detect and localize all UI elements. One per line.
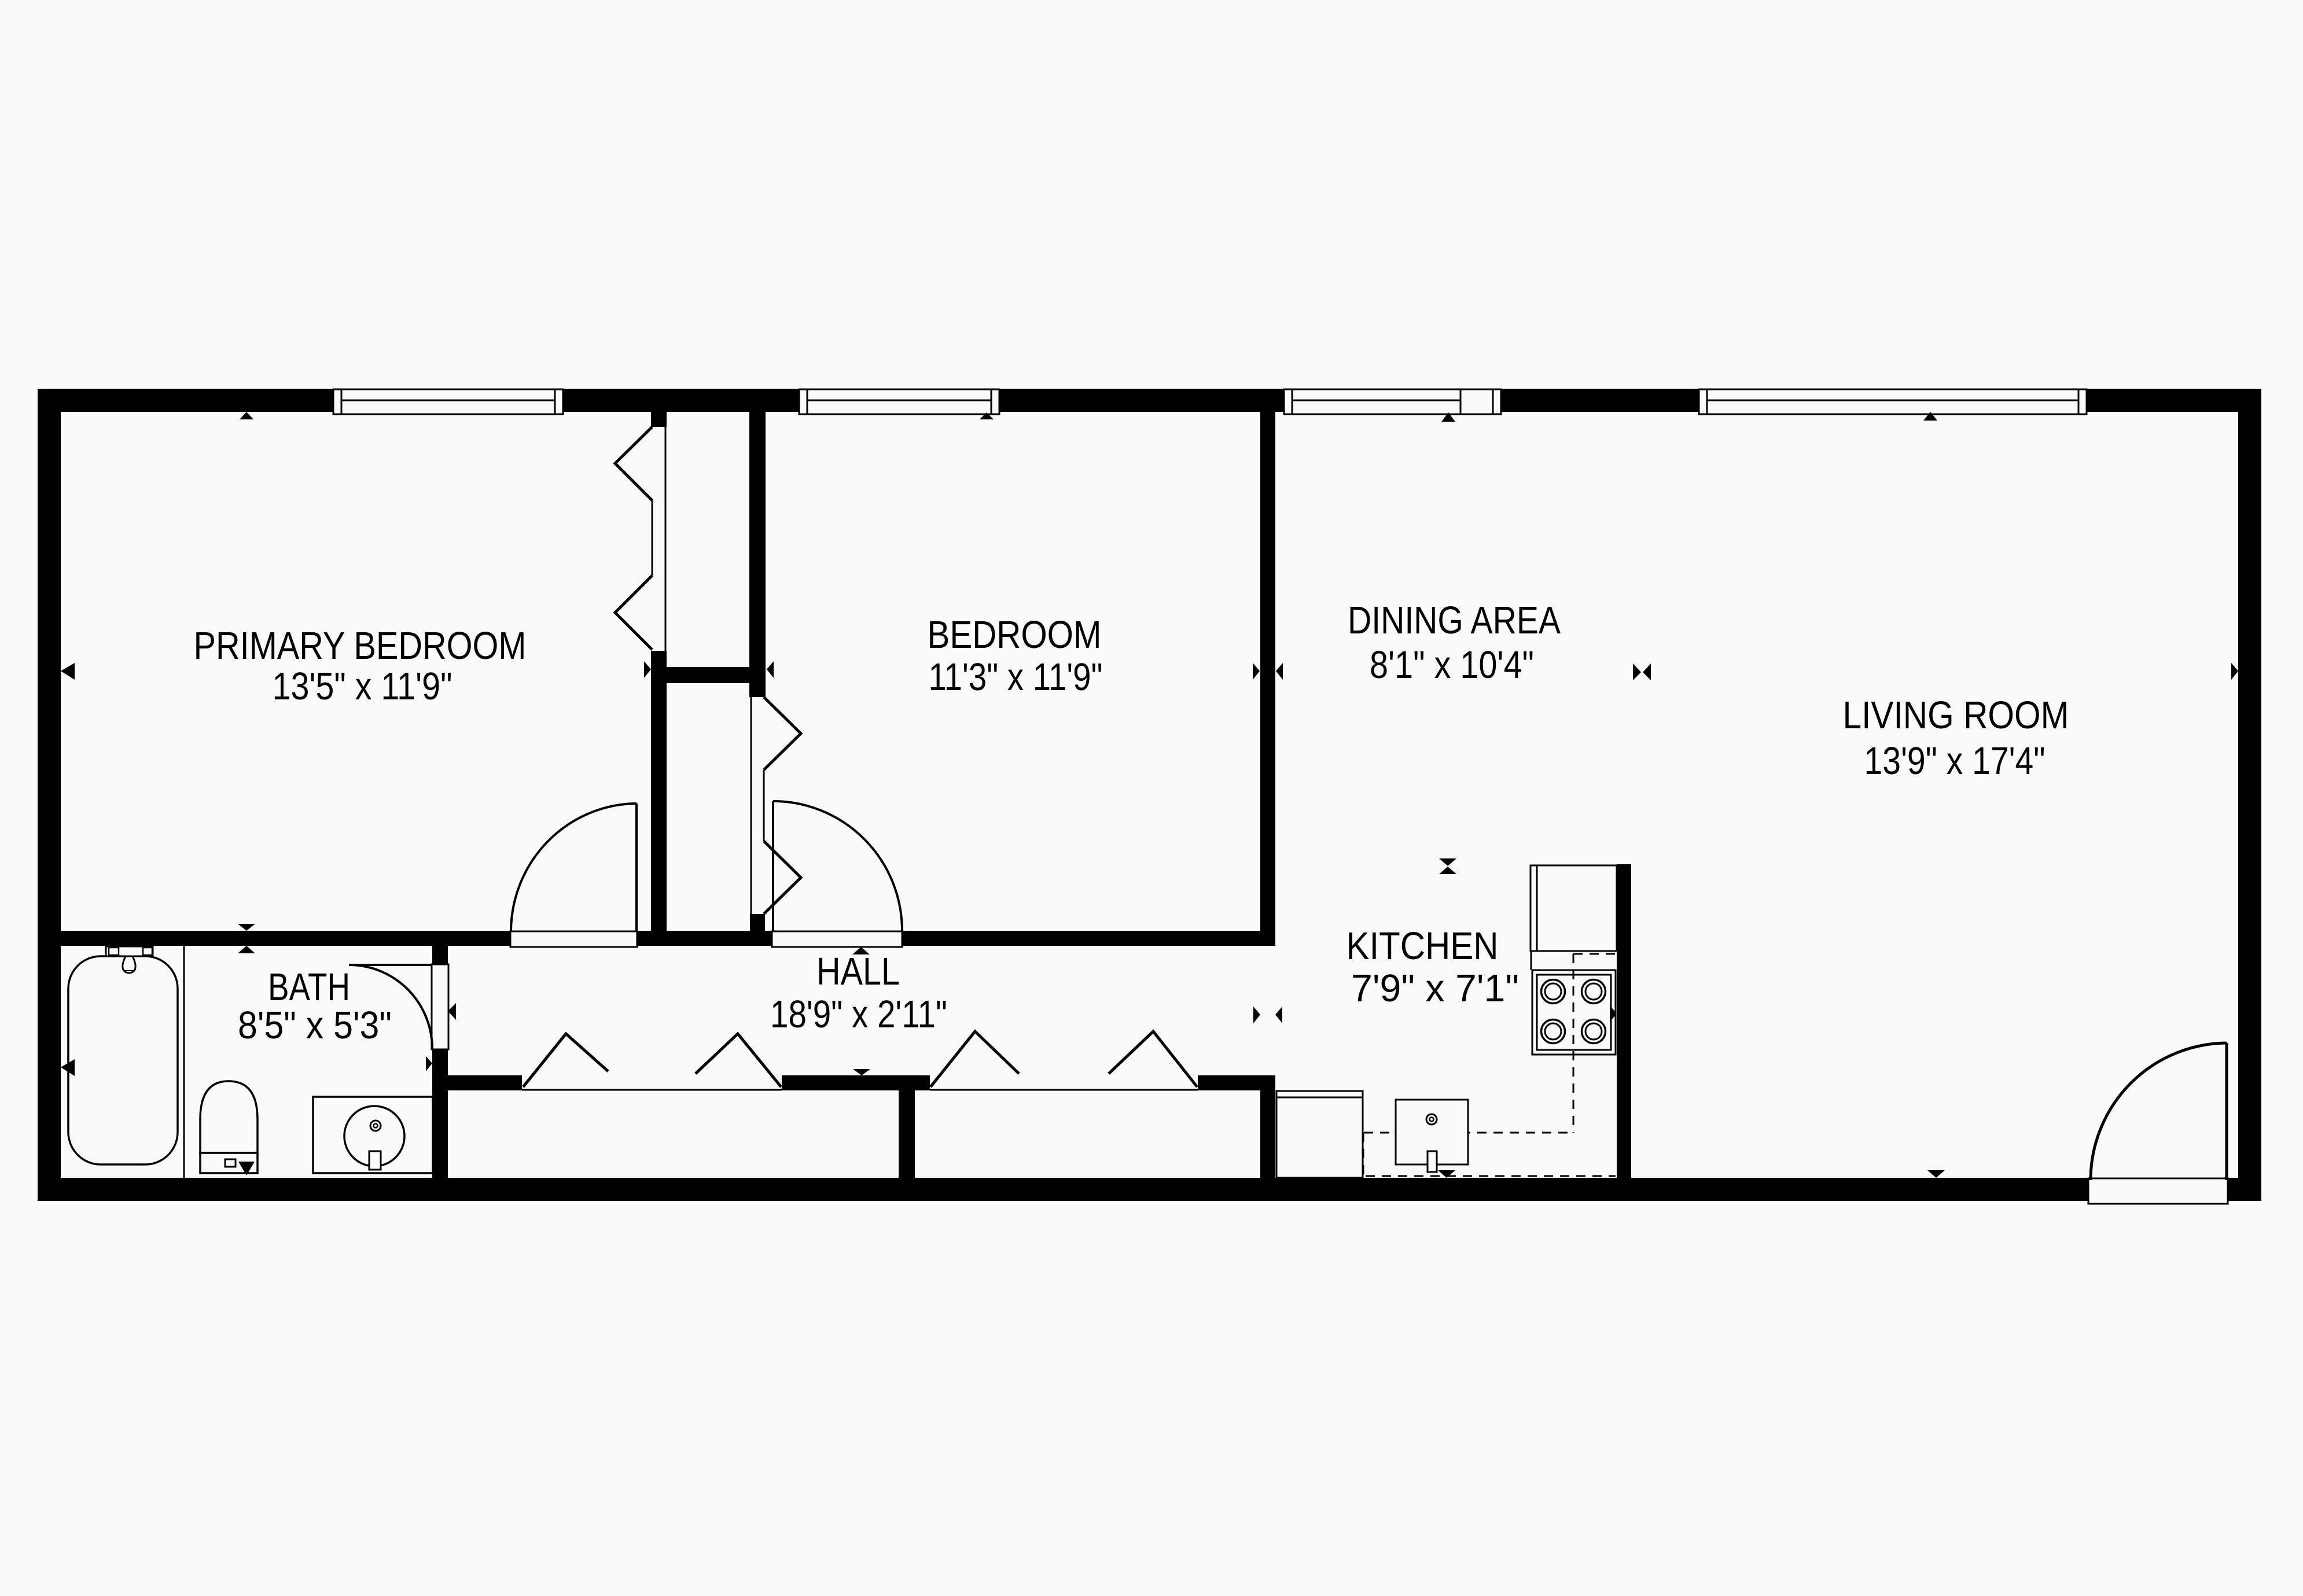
svg-text:HALL: HALL	[816, 950, 900, 993]
svg-text:11'3" x 11'9": 11'3" x 11'9"	[929, 655, 1103, 699]
svg-text:BEDROOM: BEDROOM	[928, 613, 1102, 657]
svg-text:BATH: BATH	[268, 965, 350, 1009]
svg-text:13'9" x 17'4": 13'9" x 17'4"	[1864, 739, 2046, 783]
svg-text:KITCHEN: KITCHEN	[1347, 924, 1499, 968]
svg-text:7'9" x 7'1": 7'9" x 7'1"	[1351, 967, 1519, 1010]
svg-text:13'5" x 11'9": 13'5" x 11'9"	[273, 665, 452, 708]
svg-text:PRIMARY BEDROOM: PRIMARY BEDROOM	[194, 624, 527, 668]
svg-text:18'9" x 2'11": 18'9" x 2'11"	[770, 993, 947, 1036]
svg-text:8'1" x 10'4": 8'1" x 10'4"	[1370, 643, 1534, 687]
svg-text:LIVING ROOM: LIVING ROOM	[1843, 694, 2069, 737]
svg-text:8'5" x 5'3": 8'5" x 5'3"	[238, 1004, 392, 1047]
svg-text:DINING AREA: DINING AREA	[1348, 599, 1561, 642]
